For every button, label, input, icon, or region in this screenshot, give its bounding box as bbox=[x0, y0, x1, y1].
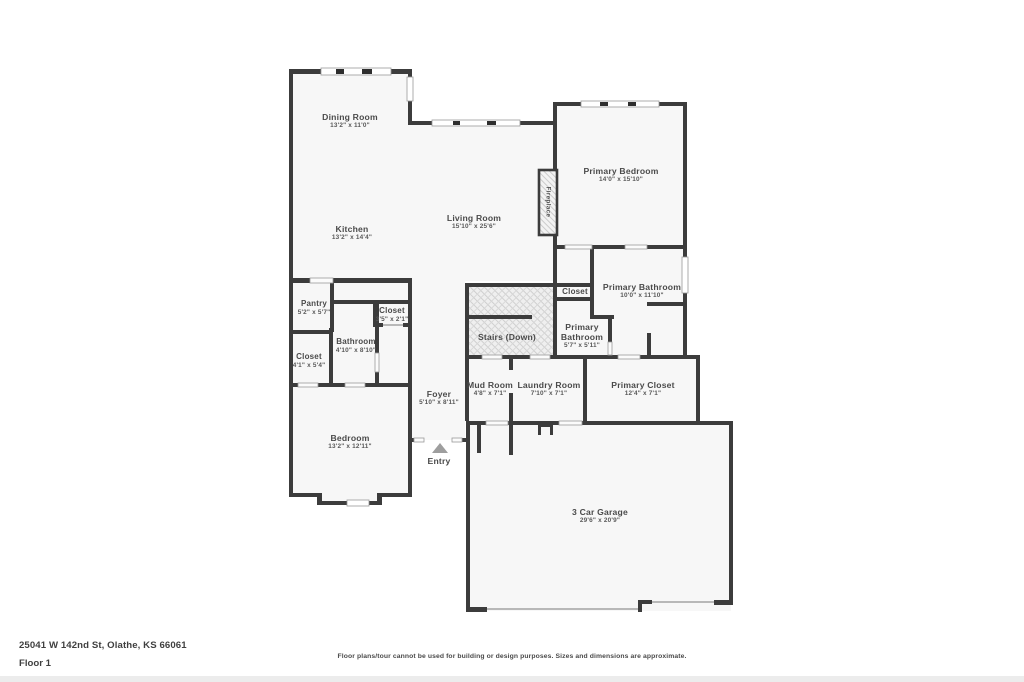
fireplace-label: Fireplace bbox=[545, 187, 552, 218]
bottom-accent-bar bbox=[0, 676, 1024, 682]
floorplan-canvas: Dining Room 13'2" x 11'0" Kitchen 13'2" … bbox=[0, 0, 1024, 682]
entry-arrow-icon bbox=[432, 443, 448, 453]
stairs-hatch bbox=[469, 287, 553, 355]
property-address: 25041 W 142nd St, Olathe, KS 66061 bbox=[19, 640, 187, 651]
disclaimer-text: Floor plans/tour cannot be used for buil… bbox=[0, 653, 1024, 660]
floorplan-drawing bbox=[0, 0, 1024, 682]
